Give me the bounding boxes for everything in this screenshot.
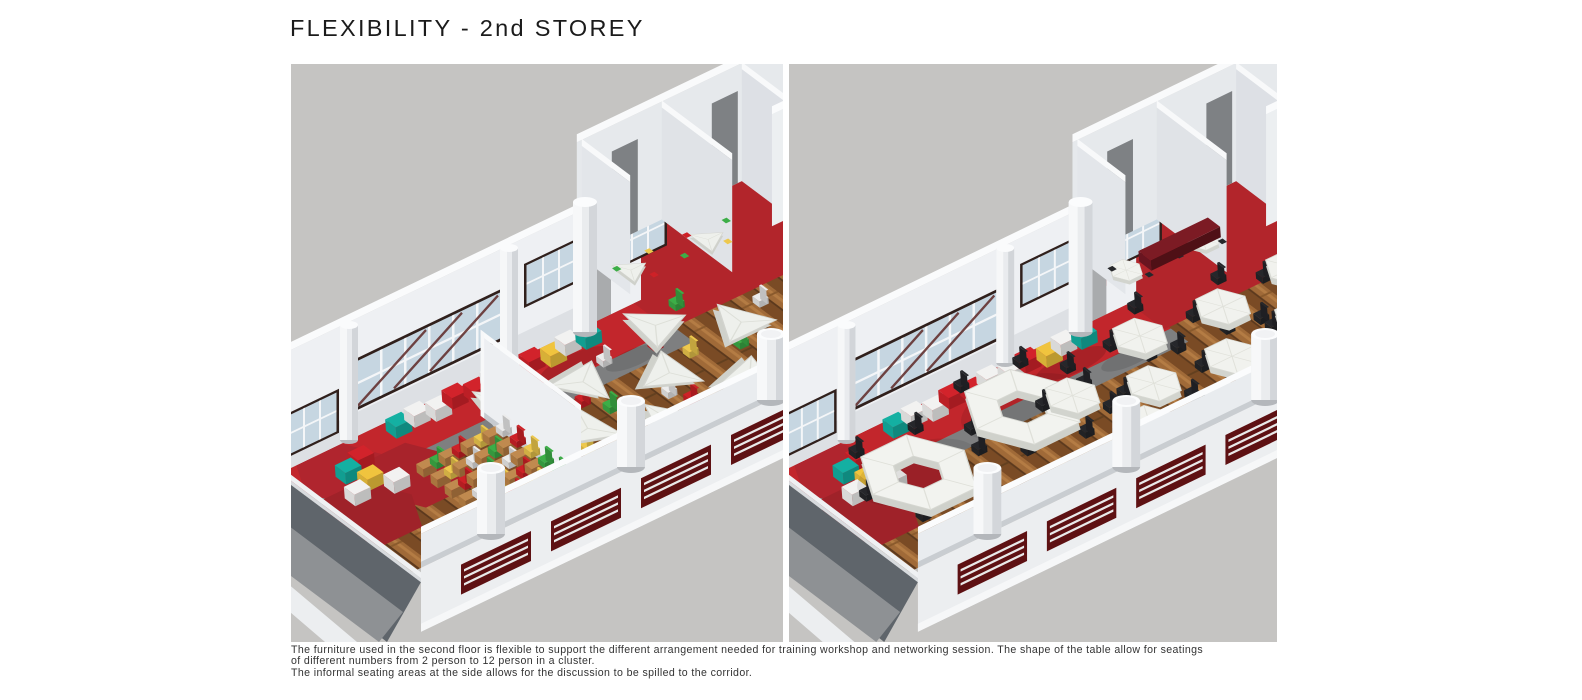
caption-line-3: The informal seating areas at the side a… <box>291 668 1203 679</box>
page-title: FLEXIBILITY - 2nd STOREY <box>290 15 645 42</box>
caption: The furniture used in the second floor i… <box>291 645 1203 679</box>
caption-line-2: of different numbers from 2 person to 12… <box>291 656 1203 667</box>
presentation-slide: FLEXIBILITY - 2nd STOREY The furniture u… <box>0 0 1582 700</box>
figure-left-training-workshop-render <box>291 64 783 642</box>
figure-right-networking-session-render <box>789 64 1277 642</box>
